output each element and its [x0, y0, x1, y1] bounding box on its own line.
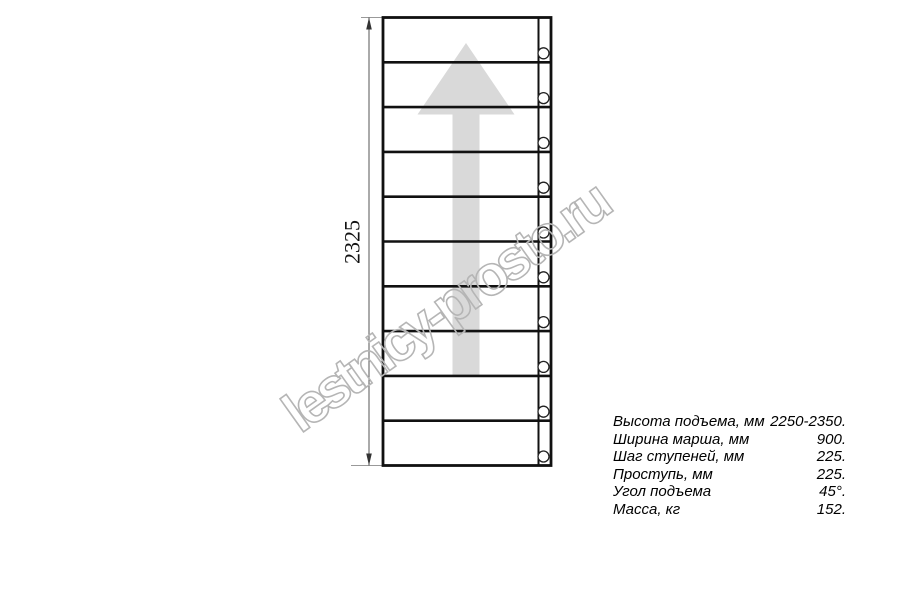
spec-row-tread: Проступь, мм 225.: [613, 466, 846, 484]
bolt-icon: [538, 182, 549, 193]
bolt-icon: [538, 48, 549, 59]
spec-row-width: Ширина марша, мм 900.: [613, 431, 846, 449]
bolt-icon: [538, 93, 549, 104]
bolt-icon: [538, 137, 549, 148]
spec-row-mass: Масса, кг 152.: [613, 501, 846, 519]
bolt-icon: [538, 451, 549, 462]
spec-value: 152.: [817, 501, 846, 519]
watermark: lestnicy-prosto.ru: [271, 169, 621, 444]
page: 2325: [0, 0, 900, 600]
spec-label: Угол подъема: [613, 483, 711, 501]
dimension-arrowhead-bottom: [366, 454, 372, 466]
spec-label: Ширина марша, мм: [613, 431, 749, 449]
dimension-arrowhead-top: [366, 18, 372, 30]
spec-row-height: Высота подъема, мм 2250-2350.: [613, 413, 846, 431]
spec-value: 225.: [817, 466, 846, 484]
spec-value: 225.: [817, 448, 846, 466]
dimension-label: 2325: [340, 220, 365, 264]
spec-value: 2250-2350.: [770, 413, 846, 431]
spec-row-angle: Угол подъема 45°.: [613, 483, 846, 501]
spec-row-step: Шаг ступеней, мм 225.: [613, 448, 846, 466]
spec-label: Высота подъема, мм: [613, 413, 765, 431]
spec-label: Шаг ступеней, мм: [613, 448, 744, 466]
spec-label: Масса, кг: [613, 501, 680, 519]
bolt-icon: [538, 361, 549, 372]
spec-value: 45°.: [819, 483, 846, 501]
spec-label: Проступь, мм: [613, 466, 713, 484]
bolt-icon: [538, 317, 549, 328]
spec-table: Высота подъема, мм 2250-2350. Ширина мар…: [613, 413, 846, 519]
spec-value: 900.: [817, 431, 846, 449]
bolt-icon: [538, 406, 549, 417]
